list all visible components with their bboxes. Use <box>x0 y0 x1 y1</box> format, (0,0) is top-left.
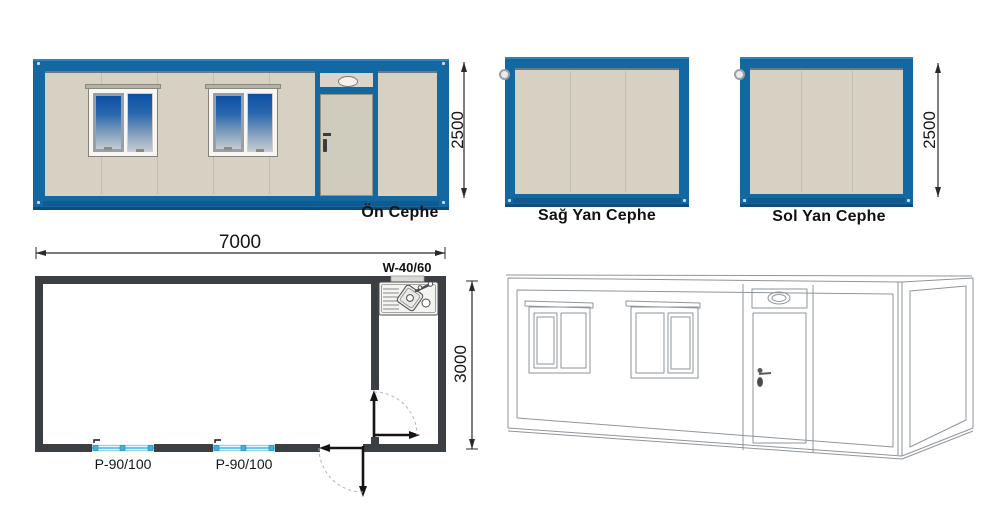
dim-3000: 3000 <box>451 340 471 388</box>
side-wall-panel <box>515 68 679 194</box>
corner-rivet <box>37 62 40 65</box>
right-side-caption: Sağ Yan Cephe <box>517 207 677 225</box>
front-door-leaf <box>320 94 373 196</box>
front-elevation <box>33 59 449 210</box>
front-door-column <box>315 71 378 196</box>
iso-roof-line <box>506 275 972 276</box>
window-pane <box>127 93 154 152</box>
corner-rivet <box>743 199 746 202</box>
wall-seam <box>625 71 626 192</box>
sink-icon <box>379 282 438 315</box>
front-window-1 <box>88 88 158 157</box>
lifting-hook-icon <box>499 69 510 80</box>
plan-window-label-1: P-90/100 <box>83 456 163 472</box>
left-side-caption: Sol Yan Cephe <box>749 208 909 226</box>
corner-rivet <box>508 199 511 202</box>
wall-seam <box>570 71 571 192</box>
wall-seam <box>852 71 853 192</box>
iso-right-face <box>902 278 973 456</box>
lifting-hook-icon <box>734 69 745 80</box>
window-pane <box>93 93 124 152</box>
iso-door-handle-icon <box>758 369 772 387</box>
window-pane <box>213 93 244 152</box>
corner-rivet <box>37 201 40 204</box>
drawing-sheet: Ön Cephe Sağ Yan Cephe Sol Yan Cephe 250… <box>0 0 994 522</box>
vent-icon <box>338 76 358 87</box>
sink-window-label: W-40/60 <box>377 260 437 275</box>
bottom-rail-shadow <box>748 198 905 203</box>
bottom-rail-shadow <box>513 198 681 203</box>
transom-panel <box>320 73 373 91</box>
window-header <box>205 84 281 89</box>
corner-rivet <box>683 199 686 202</box>
window-header <box>85 84 161 89</box>
side-wall-panel <box>750 68 903 194</box>
left-side-elevation <box>740 57 913 207</box>
iso-front-face <box>508 278 902 456</box>
iso-view <box>506 275 973 459</box>
window-pane <box>247 93 274 152</box>
iso-vent-icon <box>768 292 790 304</box>
iso-door <box>743 284 813 452</box>
iso-window-1 <box>525 301 593 373</box>
corner-rivet <box>442 62 445 65</box>
front-elevation-caption: Ön Cephe <box>340 204 460 222</box>
plan-window-label-2: P-90/100 <box>204 456 284 472</box>
dim-2500-front: 2500 <box>448 108 468 152</box>
wall-seam <box>801 71 802 192</box>
iso-window-2 <box>626 301 700 378</box>
corner-rivet <box>907 199 910 202</box>
door-handle-icon <box>323 139 327 152</box>
dim-7000: 7000 <box>180 232 300 254</box>
right-side-elevation <box>505 57 689 207</box>
front-window-2 <box>208 88 278 157</box>
dim-2500-left-side: 2500 <box>920 108 940 152</box>
